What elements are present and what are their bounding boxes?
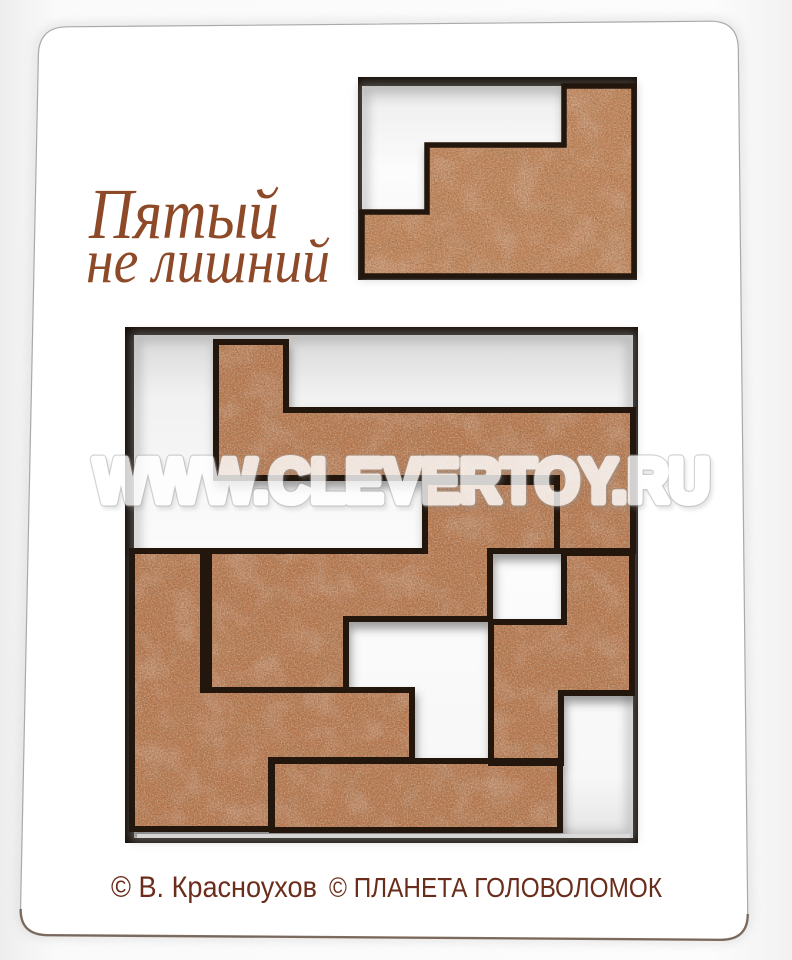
svg-text:WWW.CLEVERTOY.RU: WWW.CLEVERTOY.RU xyxy=(94,447,710,516)
svg-text:© ПЛАНЕТА ГОЛОВОЛОМОК: © ПЛАНЕТА ГОЛОВОЛОМОК xyxy=(329,872,663,903)
svg-text:© В. Красноухов: © В. Красноухов xyxy=(111,871,317,904)
svg-text:не лишний: не лишний xyxy=(86,228,330,296)
